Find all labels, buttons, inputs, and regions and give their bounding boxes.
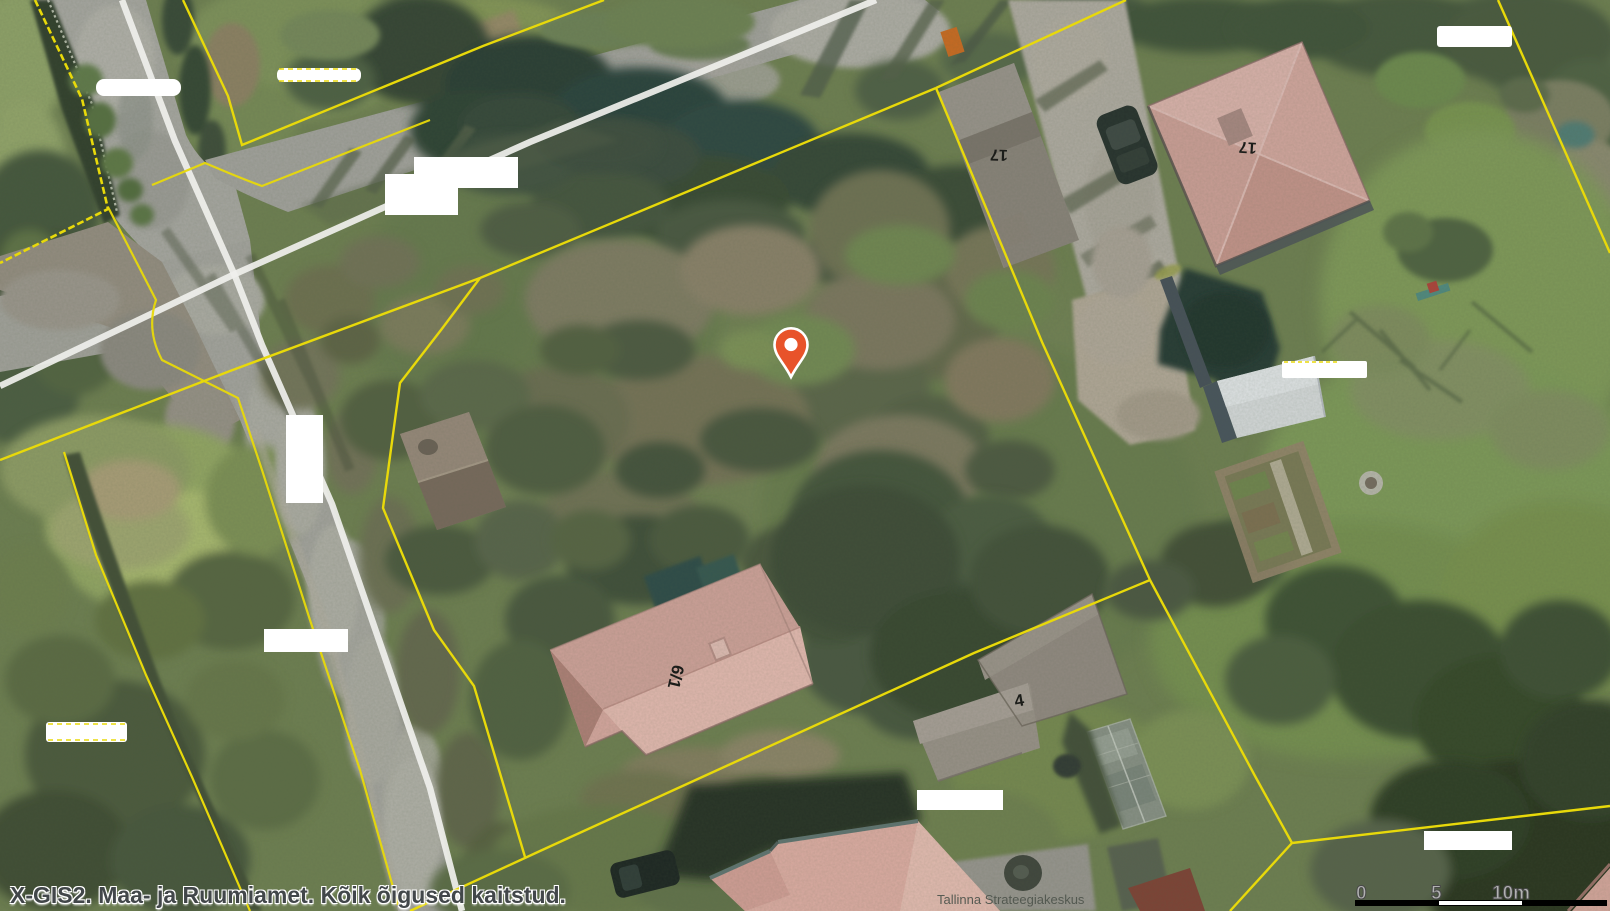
- svg-text:X-GIS2. Maa- ja Ruumiamet. Kõi: X-GIS2. Maa- ja Ruumiamet. Kõik õigused …: [10, 882, 566, 908]
- svg-text:Tallinna Strateegiakeskus: Tallinna Strateegiakeskus: [937, 892, 1085, 907]
